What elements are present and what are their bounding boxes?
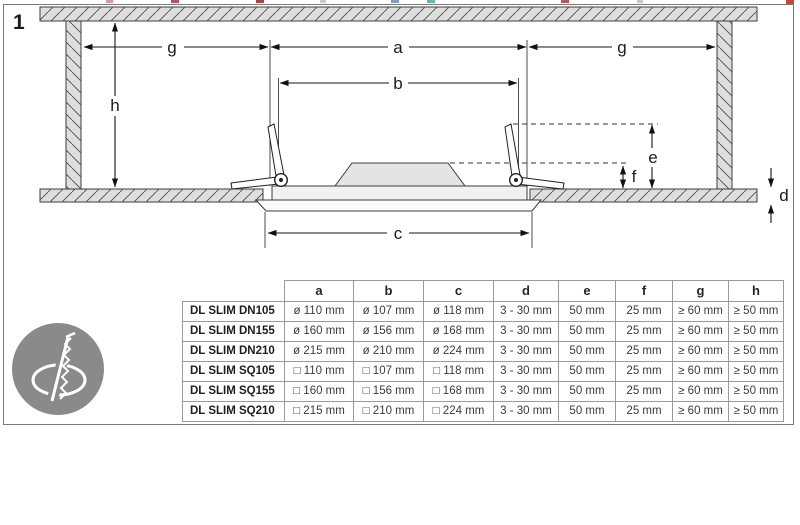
value-cell: ≥ 60 mm (673, 342, 729, 362)
value-cell: 25 mm (616, 322, 673, 342)
model-name-cell: DL SLIM DN210 (183, 342, 285, 362)
spec-table-body: DL SLIM DN105ø 110 mmø 107 mmø 118 mm3 -… (183, 302, 784, 422)
value-cell: 3 - 30 mm (494, 322, 559, 342)
left-stud (66, 21, 81, 189)
value-cell: 3 - 30 mm (494, 402, 559, 422)
header-cell: f (616, 281, 673, 302)
value-cell: □ 156 mm (354, 382, 424, 402)
model-name-cell: DL SLIM DN155 (183, 322, 285, 342)
value-cell: □ 215 mm (285, 402, 354, 422)
value-cell: ≥ 60 mm (673, 322, 729, 342)
luminaire-fixture (256, 163, 541, 211)
value-cell: □ 118 mm (424, 362, 494, 382)
table-row: DL SLIM SQ210□ 215 mm□ 210 mm□ 224 mm3 -… (183, 402, 784, 422)
right-stud (717, 21, 732, 189)
top-slab (40, 7, 757, 21)
header-row: abcdefgh (183, 281, 784, 302)
value-cell: 50 mm (559, 402, 616, 422)
value-cell: 50 mm (559, 362, 616, 382)
value-cell: ø 110 mm (285, 302, 354, 322)
value-cell: ≥ 60 mm (673, 402, 729, 422)
driver-box (335, 163, 465, 186)
value-cell: 25 mm (616, 342, 673, 362)
value-cell: ø 210 mm (354, 342, 424, 362)
value-cell: 3 - 30 mm (494, 302, 559, 322)
value-cell: ø 118 mm (424, 302, 494, 322)
value-cell: ≥ 60 mm (673, 362, 729, 382)
dim-label-a: a (393, 38, 403, 57)
dim-label-f: f (632, 167, 637, 186)
value-cell: ≥ 60 mm (673, 302, 729, 322)
value-cell: 3 - 30 mm (494, 362, 559, 382)
value-cell: ø 156 mm (354, 322, 424, 342)
header-cell: c (424, 281, 494, 302)
dim-label-g-left: g (167, 38, 176, 57)
value-cell: ≥ 50 mm (729, 322, 784, 342)
suspended-ceiling-left (40, 189, 263, 202)
value-cell: ø 107 mm (354, 302, 424, 322)
dim-label-e: e (648, 148, 657, 167)
value-cell: 50 mm (559, 342, 616, 362)
suspended-ceiling-right (530, 189, 757, 202)
value-cell: □ 224 mm (424, 402, 494, 422)
manual-page: { "figure": { "number": "1" }, "diagram"… (0, 0, 800, 525)
header-cell: d (494, 281, 559, 302)
value-cell: 25 mm (616, 382, 673, 402)
value-cell: 25 mm (616, 302, 673, 322)
value-cell: 50 mm (559, 382, 616, 402)
model-name-cell: DL SLIM SQ105 (183, 362, 285, 382)
header-cell: h (729, 281, 784, 302)
value-cell: □ 107 mm (354, 362, 424, 382)
value-cell: 50 mm (559, 302, 616, 322)
value-cell: ≥ 50 mm (729, 302, 784, 322)
value-cell: ø 160 mm (285, 322, 354, 342)
reference-lines (265, 40, 532, 248)
header-cell-blank (183, 281, 285, 302)
table-row: DL SLIM DN210ø 215 mmø 210 mmø 224 mm3 -… (183, 342, 784, 362)
table-row: DL SLIM DN155ø 160 mmø 156 mmø 168 mm3 -… (183, 322, 784, 342)
value-cell: ø 224 mm (424, 342, 494, 362)
dim-label-g-right: g (617, 38, 626, 57)
header-cell: b (354, 281, 424, 302)
value-cell: 25 mm (616, 402, 673, 422)
value-cell: 3 - 30 mm (494, 342, 559, 362)
dim-label-d: d (779, 186, 788, 205)
value-cell: □ 110 mm (285, 362, 354, 382)
value-cell: 25 mm (616, 362, 673, 382)
value-cell: ≥ 60 mm (673, 382, 729, 402)
value-cell: ø 168 mm (424, 322, 494, 342)
table-row: DL SLIM SQ105□ 110 mm□ 107 mm□ 118 mm3 -… (183, 362, 784, 382)
value-cell: 3 - 30 mm (494, 382, 559, 402)
dim-label-b: b (393, 74, 402, 93)
value-cell: ø 215 mm (285, 342, 354, 362)
spec-table: abcdefgh DL SLIM DN105ø 110 mmø 107 mmø … (182, 280, 784, 422)
saw-cutout-icon (12, 323, 104, 415)
spring-clip-right (505, 124, 564, 189)
header-cell: g (673, 281, 729, 302)
value-cell: ≥ 50 mm (729, 382, 784, 402)
installation-diagram: g a g h b e f c d (0, 0, 800, 525)
value-cell: ≥ 50 mm (729, 362, 784, 382)
value-cell: ≥ 50 mm (729, 342, 784, 362)
header-cell: e (559, 281, 616, 302)
value-cell: ≥ 50 mm (729, 402, 784, 422)
value-cell: □ 210 mm (354, 402, 424, 422)
model-name-cell: DL SLIM DN105 (183, 302, 285, 322)
spec-table-header: abcdefgh (183, 281, 784, 302)
trim-flange (256, 200, 541, 211)
model-name-cell: DL SLIM SQ155 (183, 382, 285, 402)
dim-label-c: c (394, 224, 403, 243)
header-cell: a (285, 281, 354, 302)
value-cell: □ 168 mm (424, 382, 494, 402)
table-row: DL SLIM SQ155□ 160 mm□ 156 mm□ 168 mm3 -… (183, 382, 784, 402)
value-cell: □ 160 mm (285, 382, 354, 402)
table-row: DL SLIM DN105ø 110 mmø 107 mmø 118 mm3 -… (183, 302, 784, 322)
fixture-housing (272, 186, 527, 200)
model-name-cell: DL SLIM SQ210 (183, 402, 285, 422)
dim-label-h: h (110, 96, 119, 115)
value-cell: 50 mm (559, 322, 616, 342)
